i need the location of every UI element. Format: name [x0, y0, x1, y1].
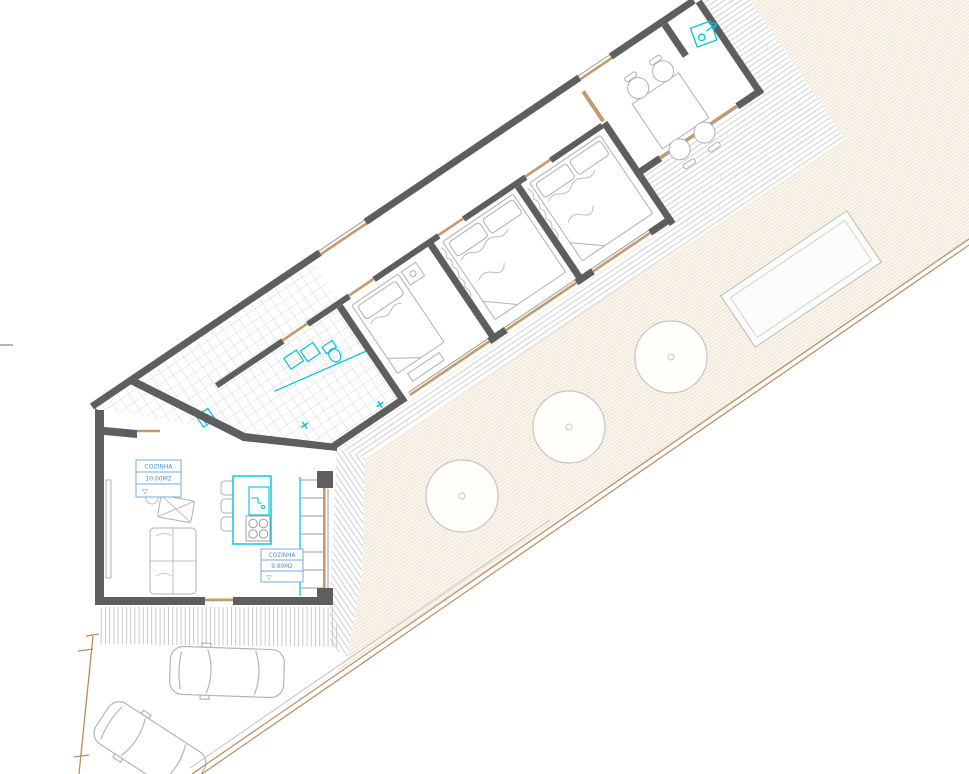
sofa: [150, 528, 196, 594]
porch-strip: [98, 607, 341, 647]
zone2-level-mark: ▽: [267, 574, 272, 582]
door-threshold: [205, 599, 233, 602]
tree: [635, 321, 707, 393]
zone1-name: COZINHA: [145, 464, 174, 471]
sink-icon: [249, 487, 269, 515]
kitchen-island: [233, 476, 271, 544]
tree: [426, 460, 498, 532]
sideboard: [106, 480, 111, 578]
zone1-level-mark: ▽: [142, 488, 148, 496]
wall-post-ne: [317, 471, 333, 488]
car-2: [87, 693, 213, 774]
tree: [533, 391, 605, 463]
wall-west: [95, 410, 104, 604]
wall-south: [95, 597, 205, 605]
zone2-name: COZINHA: [269, 553, 296, 559]
zone2-area: 9.80M2: [271, 564, 293, 570]
zone1-area: 10.00M2: [145, 476, 171, 483]
property-boundary-left: [74, 634, 99, 774]
zone-label-2: COZINHA 9.80M2 ▽: [261, 549, 303, 582]
car-1: [169, 642, 285, 702]
wall-post-se: [317, 588, 333, 605]
floor-plan-canvas: COZINHA 10.00M2 ▽ COZINHA 9.80M2 ▽: [0, 0, 969, 774]
zone-label-1: COZINHA 10.00M2 ▽: [136, 460, 181, 497]
stove-icon: [246, 516, 270, 541]
floor-plan-page: COZINHA 10.00M2 ▽ COZINHA 9.80M2 ▽: [0, 0, 969, 774]
